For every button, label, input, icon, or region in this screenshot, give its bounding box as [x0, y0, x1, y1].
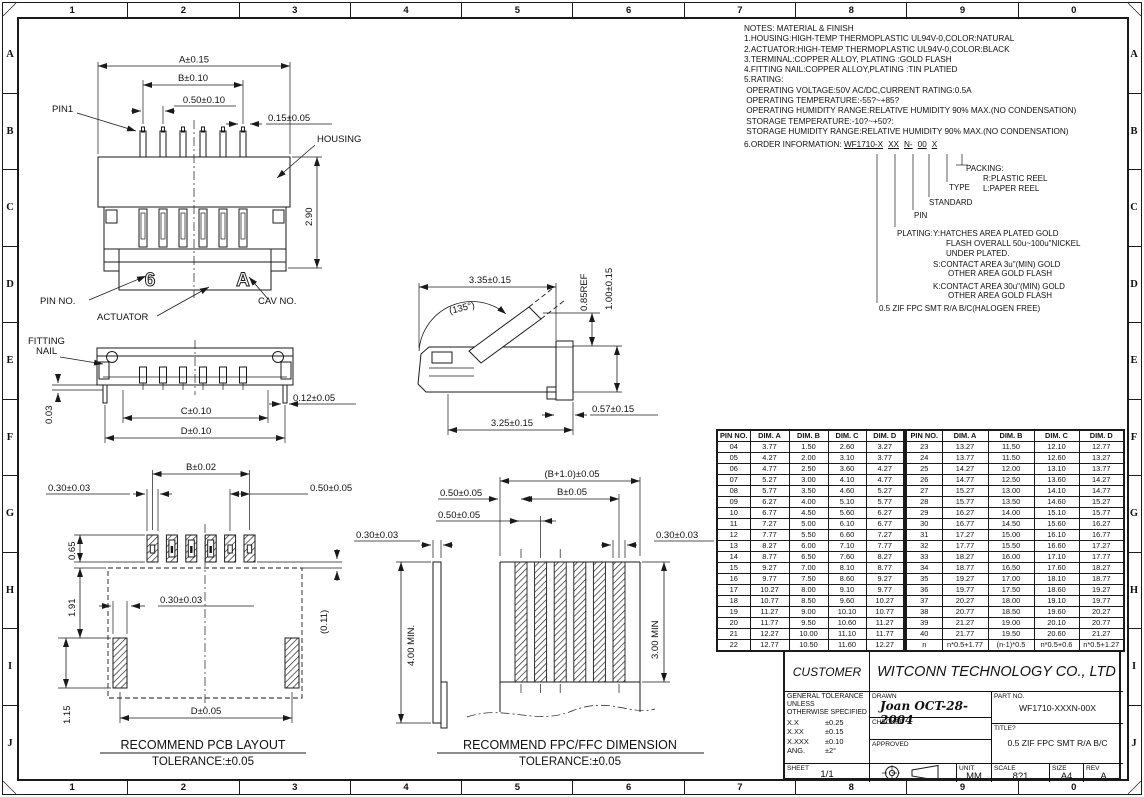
- table-cell: 15.50: [988, 541, 1034, 552]
- order-information-line: 6.ORDER INFORMATION: WF1710-XXXN-00X: [744, 140, 1136, 150]
- table-cell: 13.00: [988, 486, 1034, 497]
- table-cell: 04: [717, 442, 750, 453]
- table-cell: 17.50: [988, 585, 1034, 596]
- table-cell: 19.27: [1079, 585, 1124, 596]
- table-cell: 2.50: [789, 464, 828, 475]
- table-row: 138.276.007.107.77: [717, 541, 904, 552]
- table-row: 064.772.503.604.27: [717, 464, 904, 475]
- table-cell: 30: [906, 519, 942, 530]
- table-cell: 10.77: [866, 607, 904, 618]
- company-name: WITCONN TECHNOLOGY CO., LTD: [877, 664, 1116, 680]
- table-cell: 8.00: [789, 585, 828, 596]
- tolerance-row: X.XXX±0.10: [787, 737, 867, 747]
- table-header-cell: PIN NO.: [906, 430, 942, 442]
- table-row: 169.777.508.609.27: [717, 574, 904, 585]
- table-cell: 4.77: [866, 475, 904, 486]
- order-code-part: N-: [904, 140, 913, 149]
- table-cell: 3.50: [789, 486, 828, 497]
- table-cell: 22: [717, 640, 750, 652]
- grid-ref-label: 6: [573, 780, 684, 794]
- order-code-part: X: [932, 140, 937, 149]
- table-cell: 18.77: [1079, 574, 1124, 585]
- table-cell: 3.27: [866, 442, 904, 453]
- table-cell: 13.27: [1079, 453, 1124, 464]
- table-cell: 19.10: [1034, 596, 1079, 607]
- part-no-cell: PART NO. WF1710-XXXN-00X: [992, 692, 1123, 724]
- grid-ref-label: H: [1127, 553, 1141, 630]
- table-row: 1710.278.009.109.77: [717, 585, 904, 596]
- grid-ref-label: 7: [685, 3, 796, 17]
- grid-ref-label: B: [3, 94, 17, 171]
- title-value: 0.5 ZIF FPC SMT R/A B/C: [992, 738, 1123, 748]
- table-row: 127.775.506.607.27: [717, 530, 904, 541]
- grid-ref-label: 8: [796, 780, 907, 794]
- table-cell: 13.60: [1034, 475, 1079, 486]
- table-cell: 13.77: [1079, 464, 1124, 475]
- table-cell: 17.00: [988, 574, 1034, 585]
- table-row: 2413.7711.5012.6013.27: [906, 453, 1124, 464]
- grid-ref-label: 1: [17, 780, 128, 794]
- table-cell: 7.10: [828, 541, 866, 552]
- size-value: A4: [1050, 771, 1083, 782]
- table-cell: 20.60: [1034, 629, 1079, 640]
- table-cell: 21: [717, 629, 750, 640]
- table-row: 3016.7714.5015.6016.27: [906, 519, 1124, 530]
- tolerance-key: ANG.: [787, 746, 815, 756]
- table-row: 159.277.008.108.77: [717, 563, 904, 574]
- table-row: 2715.2713.0014.1014.77: [906, 486, 1124, 497]
- grid-ref-left: ABCDEFGHIJ: [3, 17, 17, 781]
- table-cell: 3.10: [828, 453, 866, 464]
- table-row: 3217.7715.5016.6017.27: [906, 541, 1124, 552]
- table-cell: 12.10: [1034, 442, 1079, 453]
- table-cell: 06: [717, 464, 750, 475]
- table-header-cell: DIM. B: [988, 430, 1034, 442]
- table-cell: 1.50: [789, 442, 828, 453]
- table-cell: 18.27: [1079, 563, 1124, 574]
- table-cell: 21.27: [1079, 629, 1124, 640]
- table-cell: 2.00: [789, 453, 828, 464]
- table-cell: 15.77: [942, 497, 988, 508]
- table-cell: 05: [717, 453, 750, 464]
- table-cell: 08: [717, 486, 750, 497]
- table-row: 2112.2710.0011.1011.77: [717, 629, 904, 640]
- table-cell: 37: [906, 596, 942, 607]
- table-cell: 26: [906, 475, 942, 486]
- table-cell: 9.60: [828, 596, 866, 607]
- grid-ref-label: 6: [573, 3, 684, 17]
- order-label: 6.ORDER INFORMATION:: [744, 140, 842, 149]
- table-cell: 15.27: [1079, 497, 1124, 508]
- table-cell: 13.10: [1034, 464, 1079, 475]
- grid-ref-label: 3: [240, 3, 351, 17]
- tolerance-key: X.X: [787, 718, 815, 728]
- table-cell: 15.60: [1034, 519, 1079, 530]
- projection-symbol-cell: [870, 763, 957, 782]
- tolerance-key: X.XXX: [787, 737, 815, 747]
- part-no-value: WF1710-XXXN-00X: [992, 703, 1123, 713]
- table-header-cell: DIM. A: [942, 430, 988, 442]
- grid-ref-top: 1234567890: [17, 3, 1129, 17]
- table-cell: 5.27: [750, 475, 789, 486]
- tolerance-value: ±2°: [825, 746, 836, 756]
- table-row: 3318.2716.0017.1017.77: [906, 552, 1124, 563]
- table-cell: 12.77: [1079, 442, 1124, 453]
- table-row: 117.275.006.106.77: [717, 519, 904, 530]
- grid-ref-label: 2: [128, 3, 239, 17]
- table-cell: 3.60: [828, 464, 866, 475]
- sheet-label: SHEET: [785, 764, 809, 772]
- table-header-cell: DIM. C: [1034, 430, 1079, 442]
- table-cell: 4.27: [866, 464, 904, 475]
- table-cell: 14.77: [942, 475, 988, 486]
- grid-ref-label: 1: [17, 3, 128, 17]
- tolerance-row: ANG.±2°: [787, 746, 867, 756]
- table-row: 054.272.003.103.77: [717, 453, 904, 464]
- grid-ref-label: J: [3, 706, 17, 782]
- table-row: 148.776.507.608.27: [717, 552, 904, 563]
- table-cell: 7.27: [866, 530, 904, 541]
- table-row: 096.274.005.105.77: [717, 497, 904, 508]
- table-cell: 17.27: [942, 530, 988, 541]
- table-cell: 18: [717, 596, 750, 607]
- tolerance-note: OTHERWISE SPECIFIED: [787, 709, 867, 717]
- table-cell: 40: [906, 629, 942, 640]
- notes-block: NOTES: MATERIAL & FINISH 1.HOUSING:HIGH-…: [744, 24, 1136, 151]
- table-cell: 15.27: [942, 486, 988, 497]
- scale-value: 8?1: [992, 771, 1049, 782]
- title-label: TITLE?: [992, 724, 1123, 732]
- grid-ref-label: C: [3, 170, 17, 247]
- table-cell: 20.77: [942, 607, 988, 618]
- grid-ref-label: A: [3, 17, 17, 94]
- table-cell: 4.00: [789, 497, 828, 508]
- table-cell: 7.00: [789, 563, 828, 574]
- note-line: STORAGE HUMIDITY RANGE:RELATIVE HUMIDITY…: [744, 127, 1136, 137]
- table-header-cell: DIM. C: [828, 430, 866, 442]
- table-cell: 8.10: [828, 563, 866, 574]
- table-cell: 11: [717, 519, 750, 530]
- grid-ref-label: C: [1127, 170, 1141, 247]
- table-cell: 13: [717, 541, 750, 552]
- size-cell: SIZE A4: [1050, 763, 1084, 782]
- tolerance-block: GENERAL TOLERANCE UNLESS OTHERWISE SPECI…: [785, 692, 870, 763]
- rev-value: A: [1084, 771, 1123, 782]
- grid-ref-label: E: [1127, 323, 1141, 400]
- table-header-cell: PIN NO.: [717, 430, 750, 442]
- table-cell: 6.00: [789, 541, 828, 552]
- dimension-table: PIN NO.DIM. ADIM. BDIM. CDIM. D043.771.5…: [716, 429, 1125, 652]
- grid-ref-label: 5: [462, 3, 573, 17]
- checked-cell: CHECKED: [870, 718, 992, 740]
- note-line: OPERATING TEMPERATURE:-55?~+85?: [744, 96, 1136, 106]
- table-cell: 09: [717, 497, 750, 508]
- grid-ref-label: D: [1127, 247, 1141, 324]
- table-cell: 10.27: [866, 596, 904, 607]
- table-cell: 8.27: [750, 541, 789, 552]
- tolerance-row: X.X±0.25: [787, 718, 867, 728]
- table-cell: 29: [906, 508, 942, 519]
- rev-cell: REV A: [1084, 763, 1123, 782]
- table-cell: 4.27: [750, 453, 789, 464]
- table-cell: 38: [906, 607, 942, 618]
- grid-ref-label: F: [3, 400, 17, 477]
- grid-ref-label: J: [1127, 706, 1141, 782]
- table-row: 2313.2711.5012.1012.77: [906, 442, 1124, 453]
- dimension-table-left: PIN NO.DIM. ADIM. BDIM. CDIM. D043.771.5…: [716, 429, 905, 652]
- title-block: CUSTOMER WITCONN TECHNOLOGY CO., LTD GEN…: [783, 650, 1121, 780]
- drawn-cell: DRAWN Joan OCT-28-2004: [870, 692, 992, 718]
- note-line: 2.ACTUATOR:HIGH-TEMP THERMOPLASTIC UL94V…: [744, 45, 1136, 55]
- table-cell: 4.60: [828, 486, 866, 497]
- table-cell: 19.60: [1034, 607, 1079, 618]
- grid-ref-label: I: [3, 629, 17, 706]
- grid-ref-label: 4: [351, 780, 462, 794]
- table-cell: 5.10: [828, 497, 866, 508]
- part-no-label: PART NO.: [992, 692, 1123, 700]
- table-cell: 3.77: [750, 442, 789, 453]
- table-cell: 5.77: [750, 486, 789, 497]
- grid-ref-label: 2: [128, 780, 239, 794]
- table-cell: 19.50: [988, 629, 1034, 640]
- grid-ref-label: 7: [685, 780, 796, 794]
- table-cell: 11.27: [750, 607, 789, 618]
- table-cell: 17.10: [1034, 552, 1079, 563]
- table-cell: 6.27: [866, 508, 904, 519]
- table-cell: 18.27: [942, 552, 988, 563]
- grid-ref-label: E: [3, 323, 17, 400]
- table-cell: 11.77: [750, 618, 789, 629]
- table-cell: 6.27: [750, 497, 789, 508]
- table-cell: 36: [906, 585, 942, 596]
- projection-symbol-icon: [878, 764, 948, 782]
- table-cell: 5.27: [866, 486, 904, 497]
- table-cell: 31: [906, 530, 942, 541]
- table-cell: 20.77: [1079, 618, 1124, 629]
- table-cell: 10.60: [828, 618, 866, 629]
- table-row: 2815.7713.5014.6015.27: [906, 497, 1124, 508]
- table-cell: 39: [906, 618, 942, 629]
- tolerance-note: GENERAL TOLERANCE: [787, 693, 867, 701]
- tolerance-value: ±0.10: [825, 737, 843, 747]
- dimension-table-right: PIN NO.DIM. ADIM. BDIM. CDIM. D2313.2711…: [905, 429, 1125, 652]
- table-cell: 13.77: [942, 453, 988, 464]
- customer-label: CUSTOMER: [793, 665, 861, 679]
- table-cell: 27: [906, 486, 942, 497]
- table-header-cell: DIM. A: [750, 430, 789, 442]
- table-cell: 7.77: [750, 530, 789, 541]
- table-header-row: PIN NO.DIM. ADIM. BDIM. CDIM. D: [906, 430, 1124, 442]
- table-cell: 20.10: [1034, 618, 1079, 629]
- table-cell: 18.00: [988, 596, 1034, 607]
- table-cell: 34: [906, 563, 942, 574]
- table-cell: 8.27: [866, 552, 904, 563]
- table-cell: 17.27: [1079, 541, 1124, 552]
- table-cell: 15.00: [988, 530, 1034, 541]
- table-cell: 15.10: [1034, 508, 1079, 519]
- table-row: 3418.7716.5017.6018.27: [906, 563, 1124, 574]
- table-cell: 19.00: [988, 618, 1034, 629]
- unit-value: MM: [957, 771, 991, 782]
- table-cell: 14.10: [1034, 486, 1079, 497]
- grid-ref-label: 8: [796, 3, 907, 17]
- table-cell: 16: [717, 574, 750, 585]
- table-cell: 10.10: [828, 607, 866, 618]
- table-cell: 16.60: [1034, 541, 1079, 552]
- note-line: STORAGE TEMPERATURE:-10?~+50?:: [744, 117, 1136, 127]
- table-cell: 8.77: [750, 552, 789, 563]
- tolerance-note: UNLESS: [787, 701, 867, 709]
- table-cell: 5.00: [789, 519, 828, 530]
- table-row: 3519.2717.0018.1018.77: [906, 574, 1124, 585]
- note-line: 5.RATING:: [744, 75, 1136, 85]
- table-cell: 17.60: [1034, 563, 1079, 574]
- table-row: 2614.7712.5013.6014.27: [906, 475, 1124, 486]
- table-cell: 4.10: [828, 475, 866, 486]
- table-cell: 9.27: [750, 563, 789, 574]
- note-line: 1.HOUSING:HIGH-TEMP THERMOPLASTIC UL94V-…: [744, 34, 1136, 44]
- grid-ref-label: 3: [240, 780, 351, 794]
- order-code-part: WF1710-X: [844, 140, 883, 149]
- table-cell: 9.00: [789, 607, 828, 618]
- table-cell: 16.00: [988, 552, 1034, 563]
- table-row: 1810.778.509.6010.27: [717, 596, 904, 607]
- table-cell: 11.27: [866, 618, 904, 629]
- grid-ref-label: 0: [1019, 780, 1129, 794]
- table-cell: 17.77: [942, 541, 988, 552]
- table-cell: 10.00: [789, 629, 828, 640]
- note-line: OPERATING VOLTAGE:50V AC/DC,CURRENT RATI…: [744, 86, 1136, 96]
- grid-ref-label: G: [1127, 476, 1141, 553]
- table-cell: 11.10: [828, 629, 866, 640]
- table-cell: 5.60: [828, 508, 866, 519]
- table-cell: 3.00: [789, 475, 828, 486]
- company-cell: WITCONN TECHNOLOGY CO., LTD: [870, 652, 1123, 692]
- table-cell: 24: [906, 453, 942, 464]
- grid-ref-label: 9: [907, 3, 1018, 17]
- table-cell: 12.60: [1034, 453, 1079, 464]
- table-row: 106.774.505.606.27: [717, 508, 904, 519]
- table-row: 4021.7719.5020.6021.27: [906, 629, 1124, 640]
- grid-ref-label: 9: [907, 780, 1018, 794]
- table-cell: 14.77: [1079, 486, 1124, 497]
- table-row: 3117.2715.0016.1016.77: [906, 530, 1124, 541]
- checked-label: CHECKED: [870, 718, 991, 726]
- grid-ref-label: 0: [1019, 3, 1129, 17]
- table-cell: 16.77: [942, 519, 988, 530]
- note-line: 4.FITTING NAIL:COPPER ALLOY,PLATING :TIN…: [744, 65, 1136, 75]
- table-cell: 15: [717, 563, 750, 574]
- table-row: 2011.779.5010.6011.27: [717, 618, 904, 629]
- table-cell: 10.77: [750, 596, 789, 607]
- table-cell: 21.77: [942, 629, 988, 640]
- table-cell: 14.50: [988, 519, 1034, 530]
- table-cell: 7.50: [789, 574, 828, 585]
- table-cell: 14.27: [1079, 475, 1124, 486]
- table-cell: 6.77: [866, 519, 904, 530]
- table-cell: 5.50: [789, 530, 828, 541]
- table-cell: 5.77: [866, 497, 904, 508]
- table-cell: 18.60: [1034, 585, 1079, 596]
- table-cell: 19: [717, 607, 750, 618]
- grid-ref-label: H: [3, 553, 17, 630]
- table-cell: 13.27: [942, 442, 988, 453]
- table-cell: 9.50: [789, 618, 828, 629]
- unit-cell: UNIT MM: [957, 763, 992, 782]
- table-cell: 14: [717, 552, 750, 563]
- table-cell: 6.10: [828, 519, 866, 530]
- table-cell: 6.50: [789, 552, 828, 563]
- table-cell: 18.50: [988, 607, 1034, 618]
- table-row: 2514.2712.0013.1013.77: [906, 464, 1124, 475]
- grid-ref-label: 4: [351, 3, 462, 17]
- grid-ref-label: 5: [462, 780, 573, 794]
- customer-cell: CUSTOMER: [785, 652, 870, 692]
- table-cell: 16.10: [1034, 530, 1079, 541]
- table-cell: 16.27: [1079, 519, 1124, 530]
- table-row: 085.773.504.605.27: [717, 486, 904, 497]
- table-cell: 10.27: [750, 585, 789, 596]
- table-cell: 10: [717, 508, 750, 519]
- table-row: 1911.279.0010.1010.77: [717, 607, 904, 618]
- table-cell: 19.77: [1079, 596, 1124, 607]
- table-cell: 19.77: [942, 585, 988, 596]
- table-cell: 13.50: [988, 497, 1034, 508]
- table-header-cell: DIM. D: [866, 430, 904, 442]
- grid-ref-label: G: [3, 476, 17, 553]
- table-cell: 18.10: [1034, 574, 1079, 585]
- note-line: 3.TERMINAL:COPPER ALLOY, PLATING :GOLD F…: [744, 55, 1136, 65]
- tolerance-rows: X.X±0.25X.XX±0.15X.XXX±0.10ANG.±2°: [787, 718, 867, 756]
- table-cell: 12.27: [750, 629, 789, 640]
- table-cell: 33: [906, 552, 942, 563]
- order-code-part: XX: [888, 140, 899, 149]
- table-cell: 17.77: [1079, 552, 1124, 563]
- table-cell: 12.50: [988, 475, 1034, 486]
- table-cell: 7.60: [828, 552, 866, 563]
- table-cell: 8.60: [828, 574, 866, 585]
- table-cell: 6.60: [828, 530, 866, 541]
- table-header-cell: DIM. D: [1079, 430, 1124, 442]
- title-cell: TITLE? 0.5 ZIF FPC SMT R/A B/C: [992, 724, 1123, 763]
- table-cell: 8.50: [789, 596, 828, 607]
- table-row: 3820.7718.5019.6020.27: [906, 607, 1124, 618]
- order-code-part: 00: [918, 140, 927, 149]
- table-cell: 17: [717, 585, 750, 596]
- table-cell: 6.77: [750, 508, 789, 519]
- table-cell: 21.27: [942, 618, 988, 629]
- tolerance-key: X.XX: [787, 727, 815, 737]
- table-row: 3720.2718.0019.1019.77: [906, 596, 1124, 607]
- table-cell: 20.27: [942, 596, 988, 607]
- table-cell: 9.10: [828, 585, 866, 596]
- tolerance-row: X.XX±0.15: [787, 727, 867, 737]
- table-cell: 20: [717, 618, 750, 629]
- table-cell: 4.77: [750, 464, 789, 475]
- table-cell: 8.77: [866, 563, 904, 574]
- table-row: 3921.2719.0020.1020.77: [906, 618, 1124, 629]
- table-cell: 9.77: [750, 574, 789, 585]
- table-cell: 11.50: [988, 442, 1034, 453]
- table-cell: 23: [906, 442, 942, 453]
- approved-cell: APPROVED: [870, 740, 992, 763]
- table-cell: 16.50: [988, 563, 1034, 574]
- table-cell: 18.77: [942, 563, 988, 574]
- table-cell: 9.27: [866, 574, 904, 585]
- table-cell: 7.27: [750, 519, 789, 530]
- table-cell: 12: [717, 530, 750, 541]
- table-cell: 16.27: [942, 508, 988, 519]
